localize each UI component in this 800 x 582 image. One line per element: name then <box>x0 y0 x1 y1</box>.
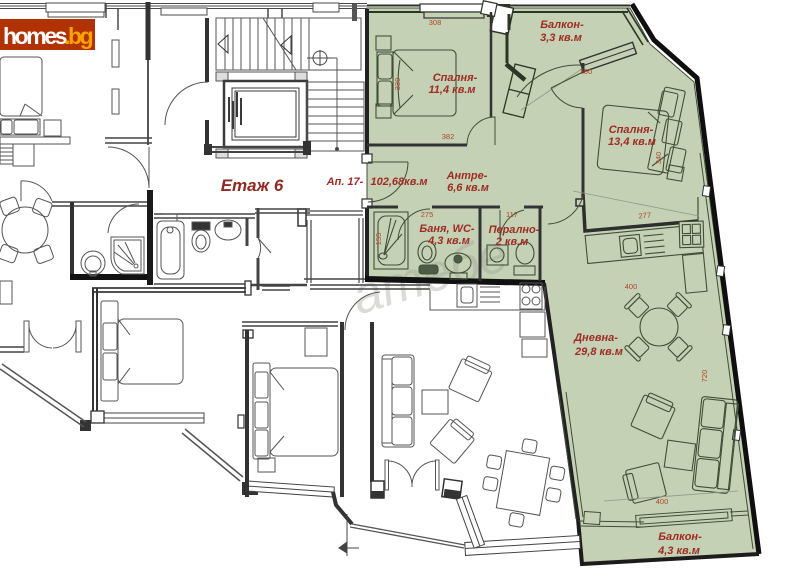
svg-text:3,3 кв.м: 3,3 кв.м <box>540 32 582 44</box>
svg-text:275: 275 <box>421 210 434 219</box>
svg-text:Баня, WC-: Баня, WC- <box>419 223 474 235</box>
svg-text:2 кв.м: 2 кв.м <box>495 236 529 248</box>
svg-text:Перално-: Перално- <box>489 224 540 236</box>
svg-text:6,6 кв.м: 6,6 кв.м <box>447 182 489 194</box>
svg-text:Ап. 17-: Ап. 17- <box>326 176 364 188</box>
svg-text:11,4 кв.м: 11,4 кв.м <box>428 84 475 96</box>
svg-text:117: 117 <box>506 210 518 219</box>
svg-text:102,68кв.м: 102,68кв.м <box>370 176 427 188</box>
svg-text:Антре-: Антре- <box>446 170 488 182</box>
svg-text:Спалня-: Спалня- <box>609 124 654 136</box>
svg-text:155: 155 <box>374 233 383 246</box>
svg-text:720: 720 <box>700 370 709 383</box>
svg-text:Балкон-: Балкон- <box>658 531 702 543</box>
svg-text:13,4 кв.м: 13,4 кв.м <box>608 136 656 148</box>
svg-text:Спалня-: Спалня- <box>433 72 478 84</box>
svg-text:Етаж 6: Етаж 6 <box>221 176 284 195</box>
svg-text:.bg: .bg <box>64 23 93 49</box>
svg-text:400: 400 <box>656 497 669 506</box>
svg-text:308: 308 <box>429 18 442 27</box>
svg-text:homes: homes <box>3 23 67 49</box>
svg-text:277: 277 <box>638 210 651 220</box>
svg-text:300: 300 <box>580 67 593 76</box>
svg-text:4,3 кв.м: 4,3 кв.м <box>657 545 700 557</box>
svg-text:340: 340 <box>654 152 663 165</box>
svg-text:Балкон-: Балкон- <box>540 19 584 31</box>
svg-text:29,8 кв.м: 29,8 кв.м <box>574 346 623 358</box>
svg-text:4,3 кв.м: 4,3 кв.м <box>427 235 470 247</box>
svg-text:382: 382 <box>442 132 455 141</box>
svg-text:330: 330 <box>393 78 402 91</box>
svg-text:Дневна-: Дневна- <box>573 332 618 344</box>
svg-text:400: 400 <box>625 282 638 291</box>
